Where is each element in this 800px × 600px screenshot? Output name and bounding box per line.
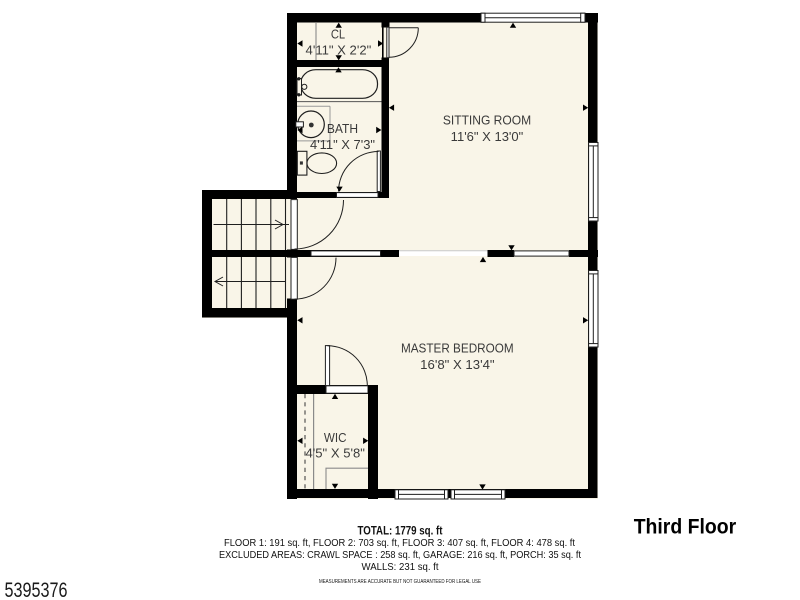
svg-text:BATH: BATH [327, 121, 358, 136]
svg-text:MASTER BEDROOM: MASTER BEDROOM [401, 341, 514, 356]
svg-text:TOTAL: 1779 sq. ft: TOTAL: 1779 sq. ft [358, 526, 443, 538]
svg-text:11'6" X 13'0": 11'6" X 13'0" [451, 129, 524, 144]
svg-text:4'11" X 7'3": 4'11" X 7'3" [310, 137, 375, 152]
svg-text:CL: CL [331, 26, 345, 41]
svg-text:4'5" X 5'8": 4'5" X 5'8" [306, 445, 366, 460]
svg-text:4'11" X 2'2": 4'11" X 2'2" [306, 43, 372, 58]
svg-text:EXCLUDED AREAS: CRAWL SPACE :: EXCLUDED AREAS: CRAWL SPACE : 258 sq. ft… [219, 550, 581, 561]
svg-text:WALLS: 231 sq. ft: WALLS: 231 sq. ft [362, 562, 439, 573]
svg-text:MEASUREMENTS ARE ACCURATE BUT: MEASUREMENTS ARE ACCURATE BUT NOT GUARAN… [319, 579, 481, 585]
svg-text:WIC: WIC [324, 430, 347, 445]
svg-text:5395376: 5395376 [5, 579, 68, 600]
svg-text:SITTING ROOM: SITTING ROOM [443, 113, 531, 128]
svg-text:FLOOR 1: 191 sq. ft, FLOOR 2:: FLOOR 1: 191 sq. ft, FLOOR 2: 703 sq. ft… [224, 538, 575, 549]
svg-text:Third Floor: Third Floor [634, 516, 737, 539]
svg-text:16'8" X 13'4": 16'8" X 13'4" [420, 357, 495, 372]
